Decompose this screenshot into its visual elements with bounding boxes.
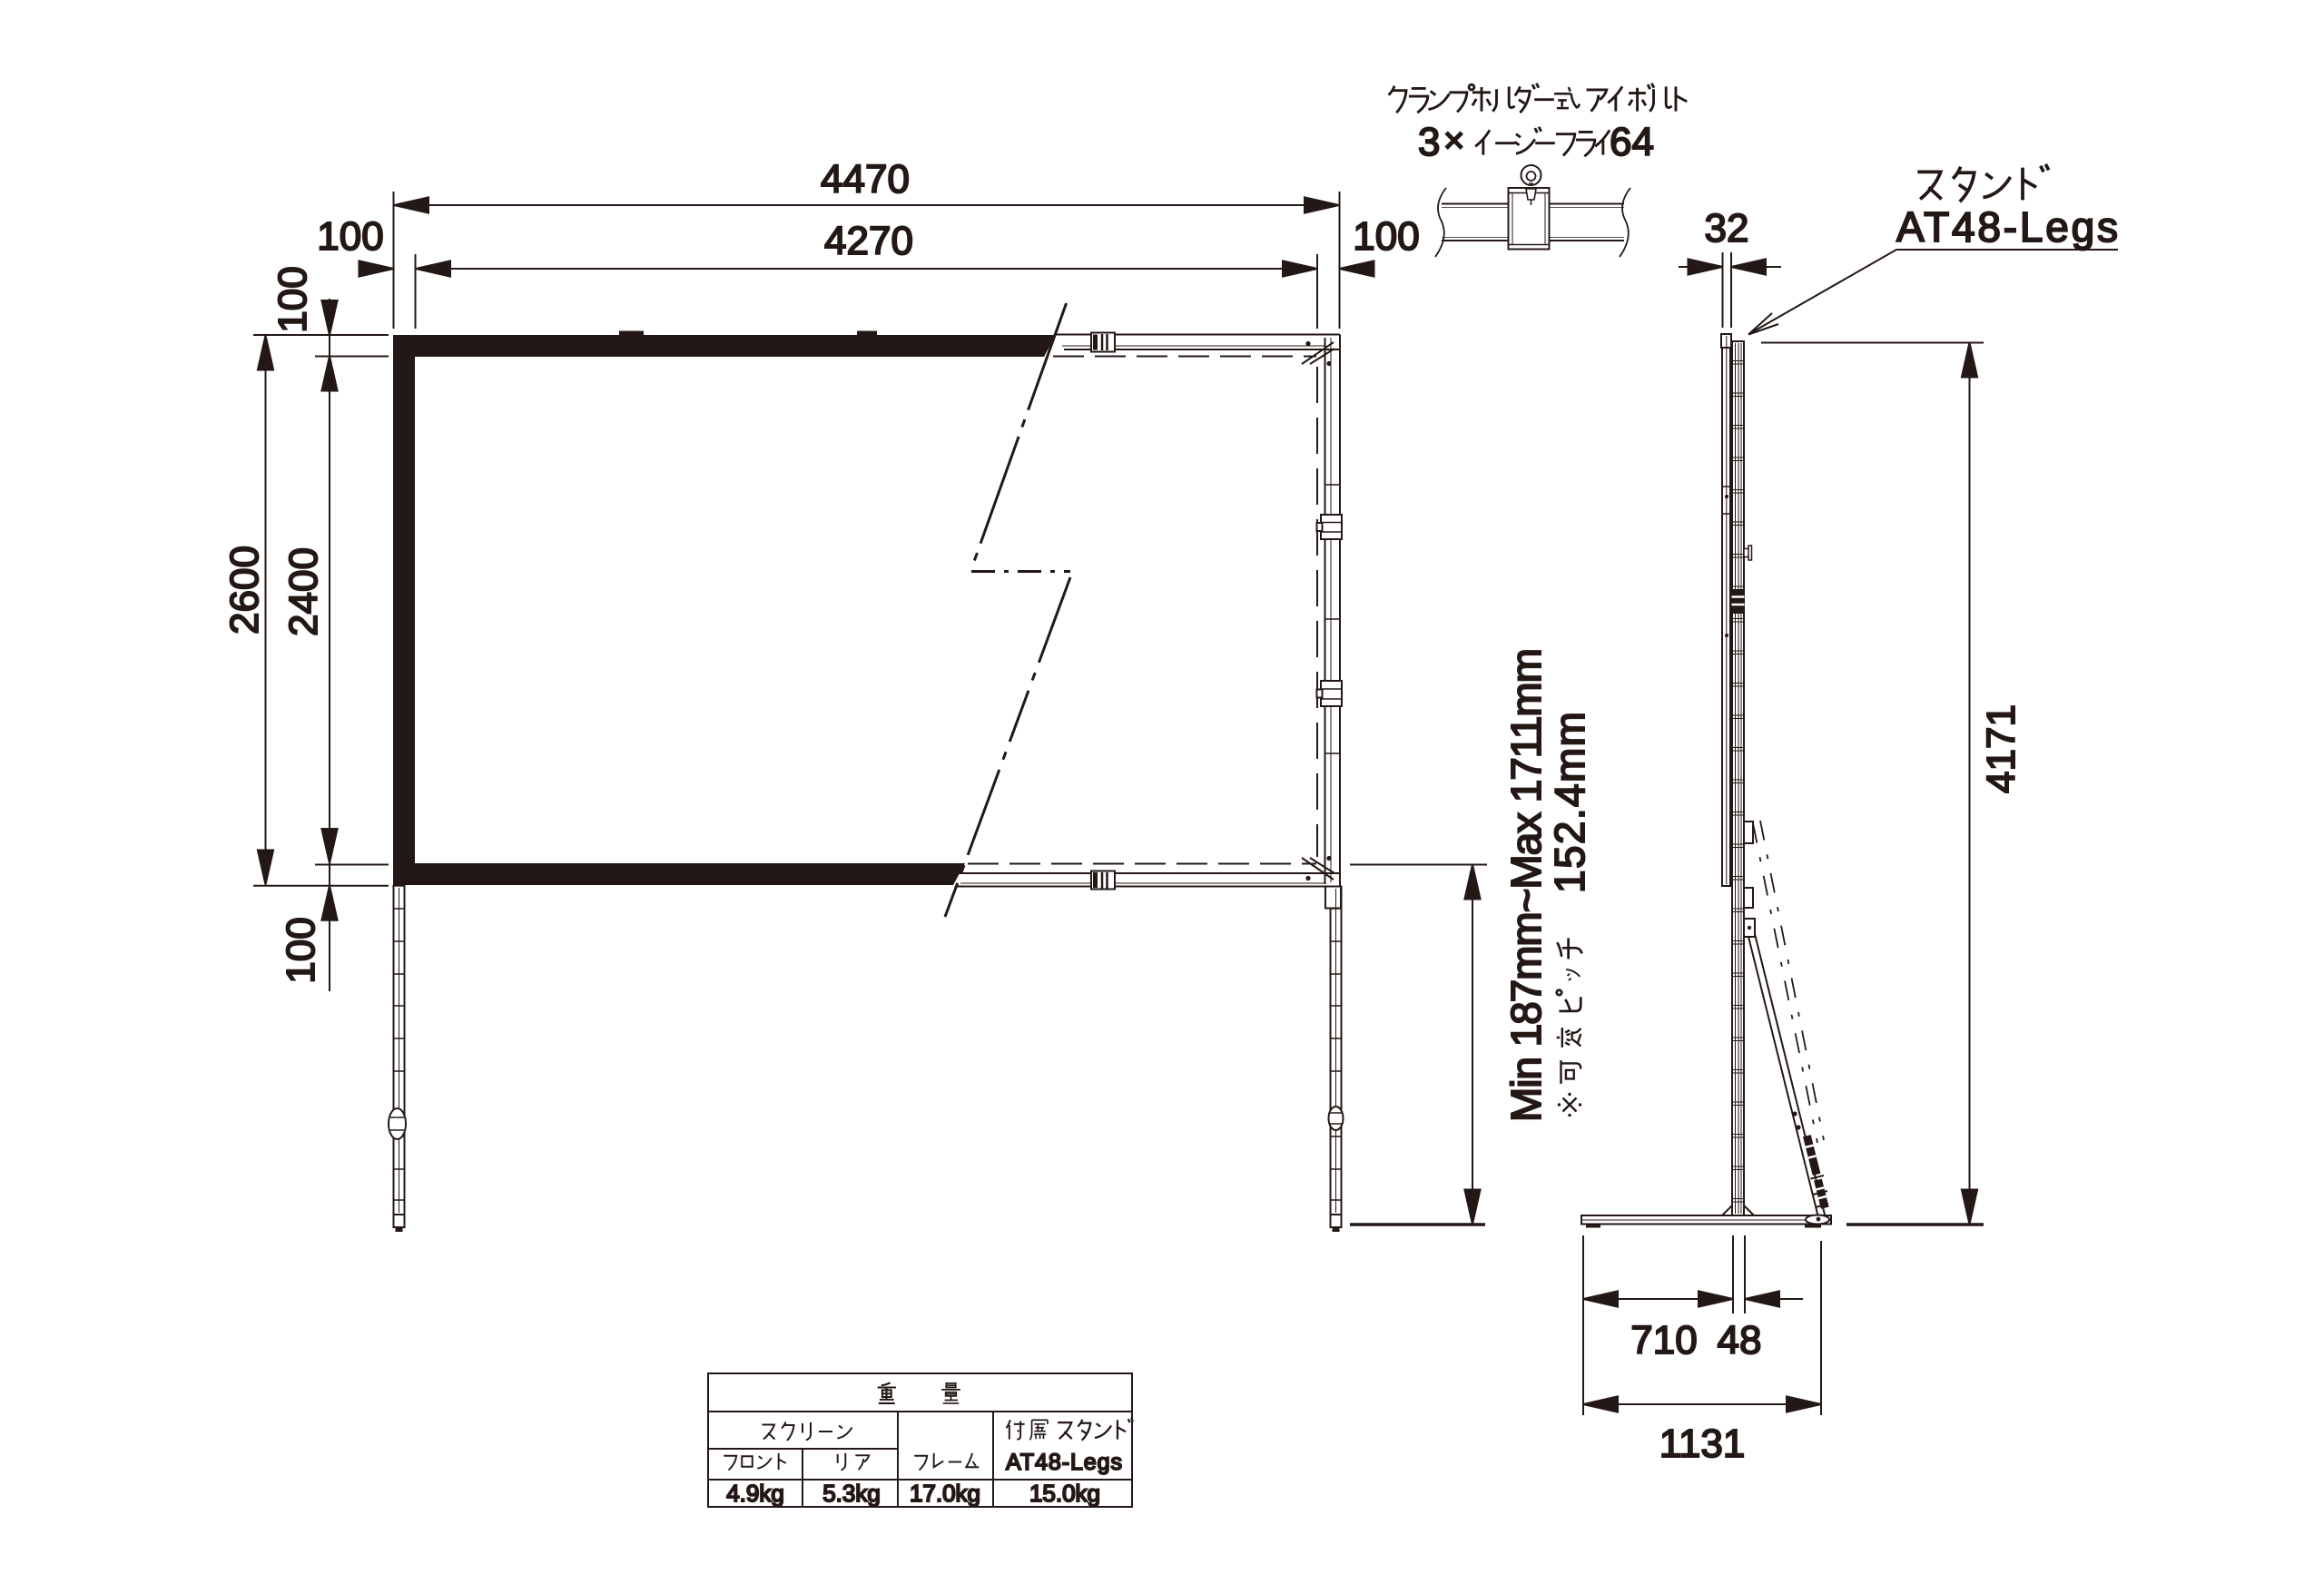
svg-text:AT48-Legs: AT48-Legs [1896,203,2118,251]
svg-text:152.4mm: 152.4mm [1546,712,1593,893]
svg-text:2400: 2400 [281,547,326,636]
svg-text:5.3kg: 5.3kg [822,1480,881,1507]
svg-text:15.0kg: 15.0kg [1029,1480,1100,1507]
svg-text:2600: 2600 [222,546,267,635]
svg-text:100: 100 [1353,214,1419,259]
svg-text:710: 710 [1630,1318,1697,1363]
svg-text:4171: 4171 [1979,704,2024,793]
svg-text:1131: 1131 [1659,1422,1746,1466]
svg-text:100: 100 [271,266,315,332]
svg-text:17.0kg: 17.0kg [910,1480,980,1507]
svg-text:4270: 4270 [824,219,913,263]
svg-text:Min 187mm~Max 1711mm: Min 187mm~Max 1711mm [1502,648,1550,1122]
svg-text:100: 100 [279,917,323,983]
svg-text:4470: 4470 [821,157,910,202]
svg-text:×: × [1443,121,1464,161]
svg-text:AT48-Legs: AT48-Legs [1006,1450,1122,1475]
svg-text:100: 100 [317,214,383,259]
svg-text:48: 48 [1718,1318,1762,1363]
svg-text:32: 32 [1705,206,1749,251]
svg-text:4.9kg: 4.9kg [726,1480,784,1507]
svg-text:64: 64 [1610,120,1654,164]
svg-text:3: 3 [1418,120,1440,164]
